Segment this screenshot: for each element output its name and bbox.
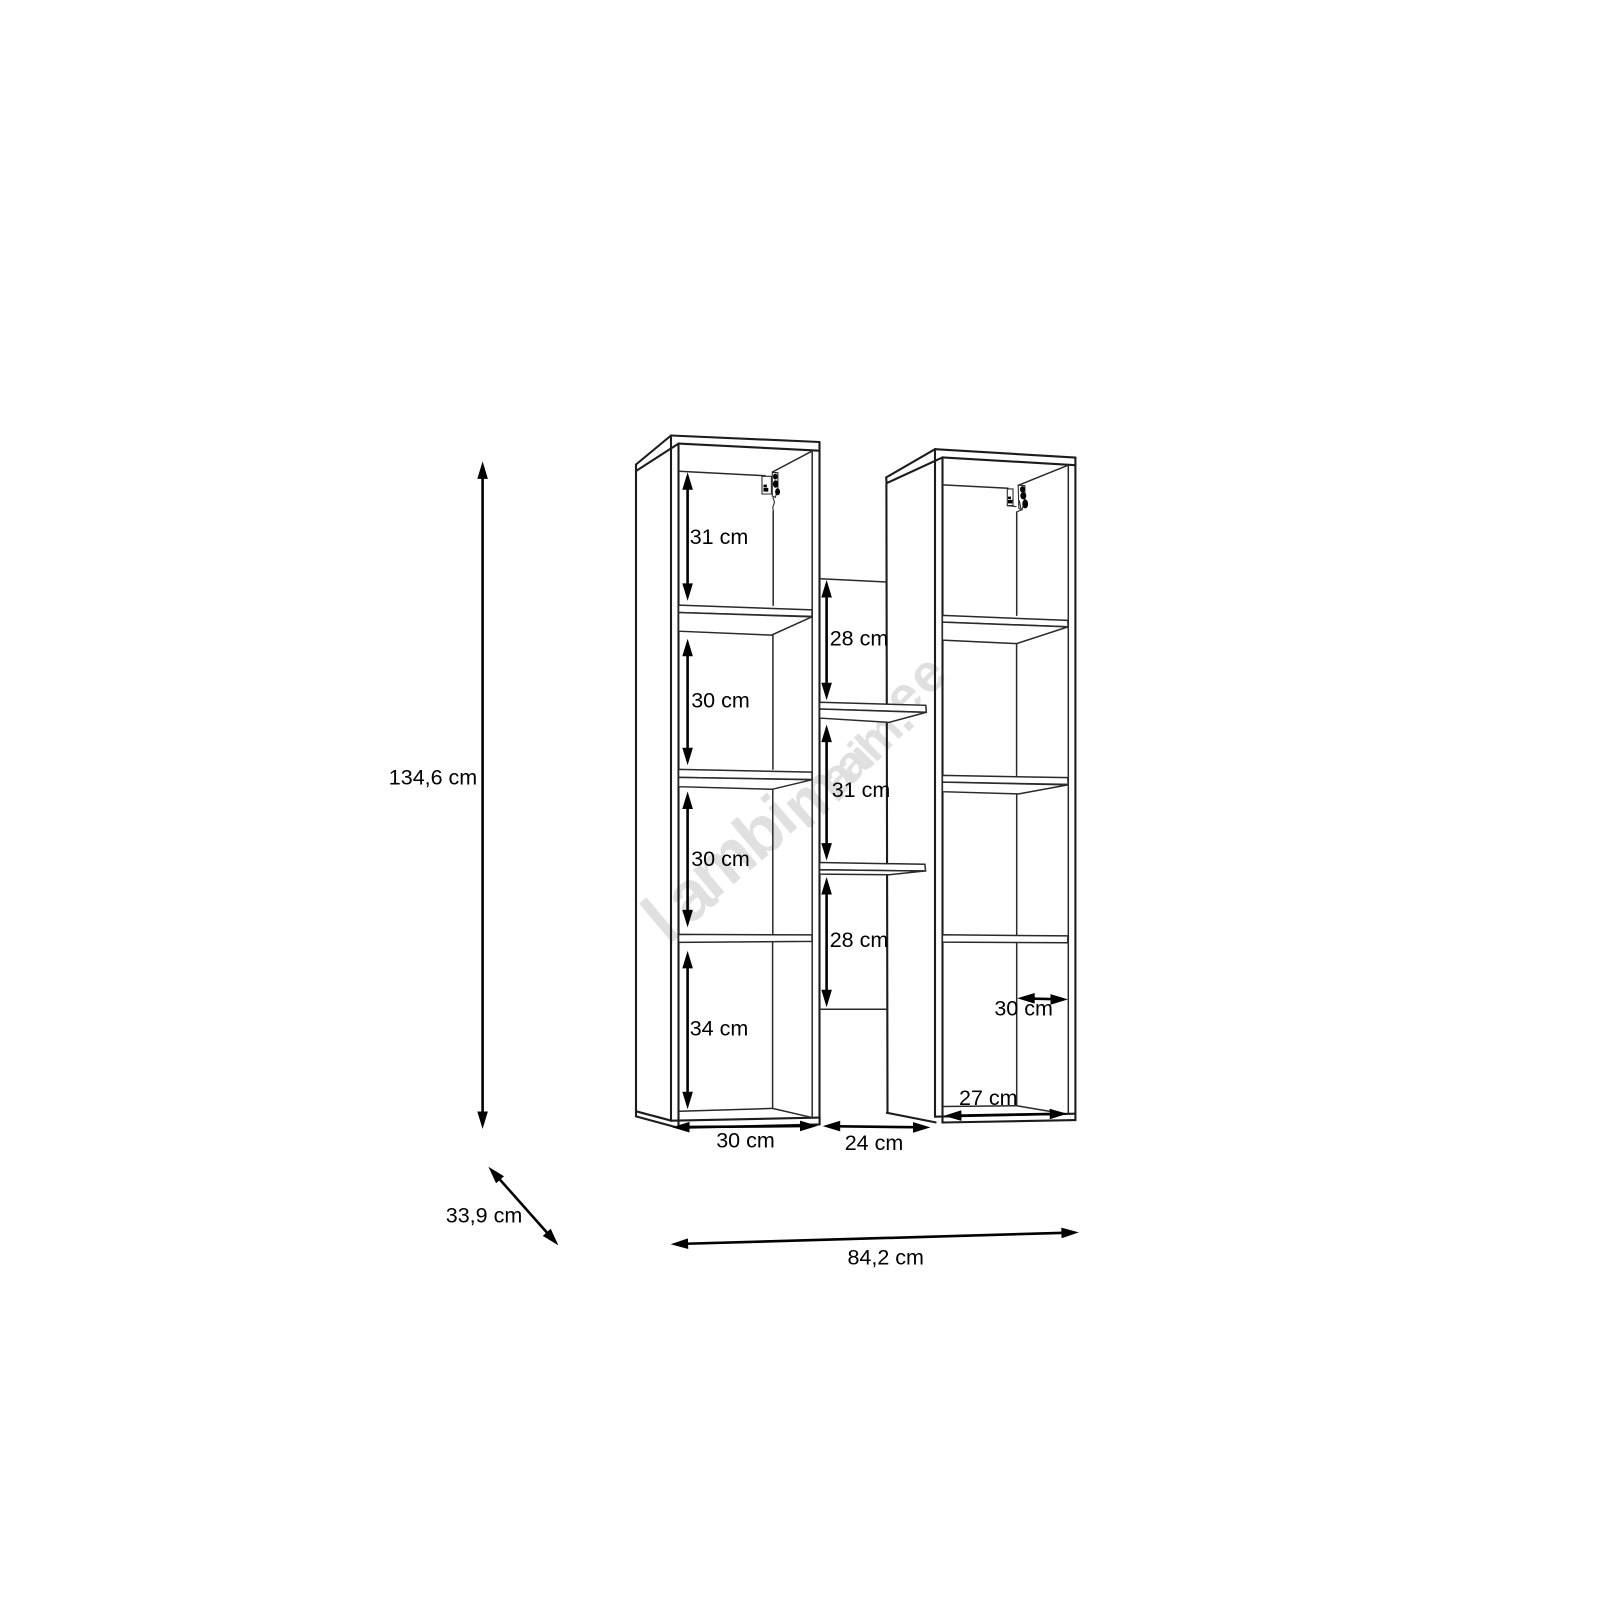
svg-text:31 cm: 31 cm [832,778,891,802]
svg-text:30 cm: 30 cm [716,1129,775,1153]
svg-text:30 cm: 30 cm [691,847,750,871]
svg-text:31 cm: 31 cm [690,525,749,549]
svg-text:24 cm: 24 cm [845,1131,904,1155]
svg-text:28 cm: 28 cm [830,627,889,651]
svg-text:28 cm: 28 cm [830,928,889,952]
svg-text:30 cm: 30 cm [994,997,1053,1021]
svg-text:33,9 cm: 33,9 cm [446,1203,522,1227]
svg-text:134,6 cm: 134,6 cm [389,766,477,790]
svg-text:30 cm: 30 cm [691,689,750,713]
svg-text:34 cm: 34 cm [690,1017,749,1041]
svg-text:27 cm: 27 cm [959,1086,1018,1110]
svg-text:84,2 cm: 84,2 cm [847,1246,923,1270]
